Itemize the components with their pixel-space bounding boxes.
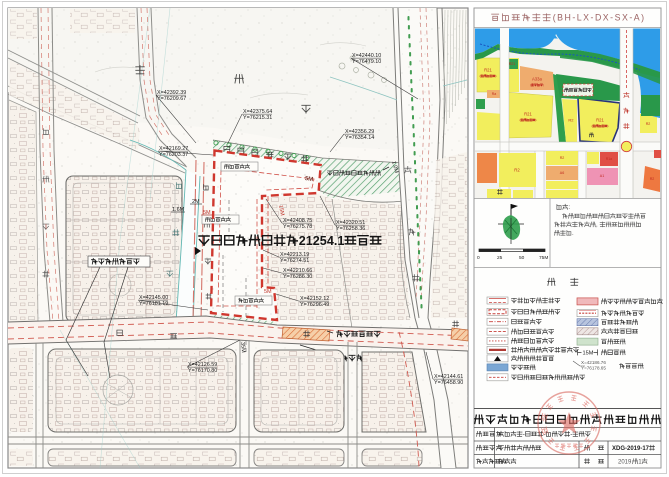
svg-text:Y=76479.10: Y=76479.10 [352, 59, 381, 65]
svg-text:R21: R21 [596, 117, 604, 122]
svg-text:R2: R2 [650, 177, 655, 181]
svg-text:Y=76178.65: Y=76178.65 [581, 366, 606, 371]
svg-text:Y=76354.14: Y=76354.14 [345, 135, 374, 141]
svg-text:5M: 5M [304, 176, 313, 183]
svg-text:): ) [543, 83, 544, 87]
svg-text:R21: R21 [524, 111, 532, 116]
svg-text:25: 25 [497, 255, 503, 261]
svg-text:-: - [523, 431, 525, 438]
svg-text:): ) [536, 118, 537, 122]
svg-text:-: - [570, 431, 572, 438]
svg-text:(: ( [520, 118, 521, 122]
svg-text:R2: R2 [514, 167, 520, 172]
svg-text:A1: A1 [600, 174, 604, 178]
svg-text:1: 1 [638, 458, 642, 465]
svg-text:Y=76258.36: Y=76258.36 [336, 226, 365, 232]
svg-text:Y=76286.30: Y=76286.30 [283, 274, 312, 280]
svg-text:2019: 2019 [618, 460, 632, 466]
svg-text:(: ( [530, 83, 531, 87]
svg-text:X=42186.76: X=42186.76 [581, 360, 606, 365]
svg-text:50: 50 [519, 255, 525, 261]
svg-text:): ) [608, 124, 609, 128]
svg-text:R2: R2 [568, 117, 574, 122]
svg-text:A33a: A33a [532, 76, 542, 81]
svg-text:21254.1: 21254.1 [299, 234, 345, 248]
svg-text:Ra: Ra [492, 92, 496, 96]
svg-text:(: ( [480, 74, 481, 78]
svg-text:Y=76209.67: Y=76209.67 [157, 96, 186, 102]
svg-text:(: ( [592, 124, 593, 128]
svg-text:A6: A6 [560, 171, 564, 175]
svg-text:75M: 75M [539, 255, 548, 261]
svg-text:Y=76296.49: Y=76296.49 [300, 302, 329, 308]
svg-text:): ) [496, 74, 497, 78]
svg-text:Y=76275.78: Y=76275.78 [283, 224, 312, 230]
svg-text:Y=76170.80: Y=76170.80 [188, 368, 217, 374]
svg-text:XDG-2019-17: XDG-2019-17 [612, 446, 650, 452]
svg-text:0: 0 [477, 255, 480, 261]
svg-text:R2: R2 [560, 156, 565, 160]
svg-text:15M: 15M [583, 351, 594, 357]
svg-text:Y=76274.51: Y=76274.51 [280, 258, 309, 264]
svg-text:Y=76458.90: Y=76458.90 [434, 380, 463, 386]
svg-text:(BH-LX-DX-SX-A): (BH-LX-DX-SX-A) [553, 13, 646, 23]
svg-text:R2: R2 [646, 122, 651, 126]
svg-text:R21: R21 [509, 62, 516, 66]
svg-text:R1a: R1a [606, 157, 612, 161]
svg-text:5M: 5M [264, 289, 272, 295]
svg-text:Y=76215.31: Y=76215.31 [243, 115, 272, 121]
svg-text:R21: R21 [484, 67, 492, 72]
svg-text::: : [568, 204, 570, 211]
